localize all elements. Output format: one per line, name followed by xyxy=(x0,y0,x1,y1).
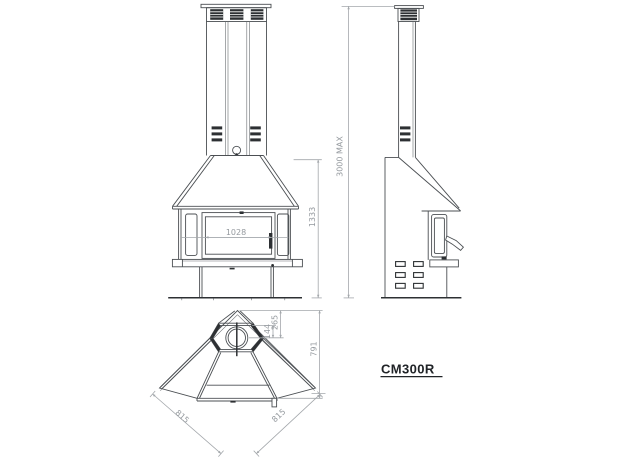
dim-label-depth: 791 xyxy=(309,341,318,356)
plan-front-band xyxy=(197,385,277,407)
side-dimensions: 3000 MAX xyxy=(335,6,394,298)
fireplace-drawing-svg: 1028 1333 xyxy=(0,0,624,460)
plan-view xyxy=(160,311,316,407)
dim-label-right-side: 815 xyxy=(270,407,287,424)
front-chimney-column xyxy=(207,22,267,156)
side-chimney xyxy=(395,6,424,158)
dim-label-max-flue-height: 3000 MAX xyxy=(335,136,344,177)
front-chimney-cap xyxy=(201,4,271,21)
dim-label-flue-to-box: 144 xyxy=(263,324,272,339)
front-base xyxy=(168,259,302,300)
left-side-vent-panel xyxy=(186,214,197,255)
damper-ring xyxy=(233,146,241,154)
model-name-text: CM300R xyxy=(381,362,435,377)
side-door-handle xyxy=(446,236,464,250)
front-hood xyxy=(173,156,299,210)
door-handle xyxy=(269,233,272,249)
dim-label-left-side: 815 xyxy=(173,408,190,425)
plan-dimensions: 791 265 144 815 815 xyxy=(150,311,326,457)
door-latch xyxy=(240,211,244,214)
right-side-vent-panel xyxy=(277,214,288,255)
side-body xyxy=(381,157,463,297)
plan-chimney-box xyxy=(210,322,264,356)
plan-handle xyxy=(272,398,277,407)
side-latch xyxy=(442,256,447,259)
model-label: CM300R xyxy=(381,362,443,377)
front-view xyxy=(168,4,302,300)
side-shelf xyxy=(430,260,459,267)
side-base-vents xyxy=(396,262,424,289)
dim-label-glass-width: 1028 xyxy=(226,228,246,237)
dim-label-overall-height: 1333 xyxy=(308,207,317,227)
technical-drawing-sheet: 1028 1333 xyxy=(0,0,624,460)
side-view xyxy=(381,6,463,298)
front-chimney-louvers xyxy=(212,126,261,141)
